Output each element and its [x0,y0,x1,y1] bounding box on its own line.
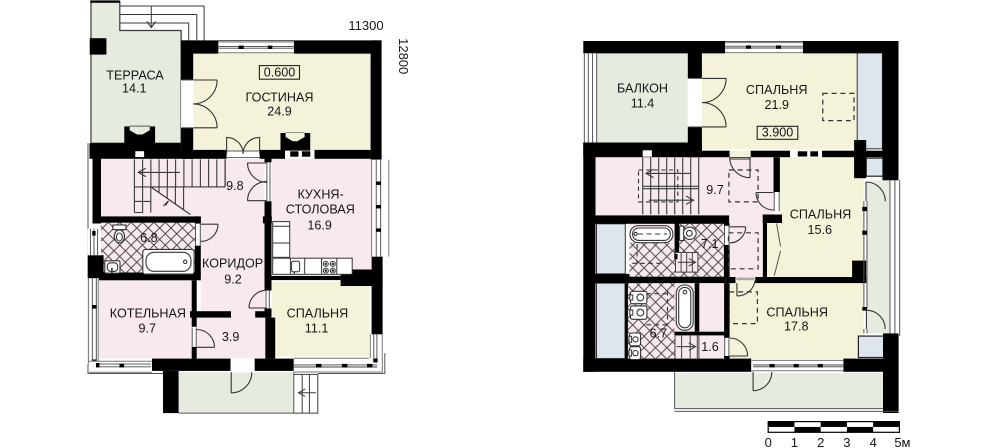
svg-text:11300: 11300 [348,18,383,33]
svg-text:17.8: 17.8 [784,320,809,334]
svg-text:КУХНЯ-: КУХНЯ- [297,187,343,201]
svg-text:5м: 5м [894,435,910,448]
svg-text:КОРИДОР: КОРИДОР [202,256,263,270]
svg-text:СПАЛЬНЯ: СПАЛЬНЯ [287,307,349,321]
svg-text:1.6: 1.6 [701,340,719,354]
svg-text:3.900: 3.900 [762,126,794,140]
svg-text:4: 4 [870,435,877,448]
svg-text:1: 1 [791,435,798,448]
svg-text:6.7: 6.7 [650,326,668,340]
svg-text:7.1: 7.1 [701,237,719,251]
svg-text:9.7: 9.7 [706,183,724,197]
svg-text:24.9: 24.9 [267,104,292,118]
svg-text:3.9: 3.9 [222,330,240,344]
svg-text:КОТЕЛЬНАЯ: КОТЕЛЬНАЯ [110,306,186,320]
svg-text:БАЛКОН: БАЛКОН [617,81,668,95]
svg-text:ГОСТИНАЯ: ГОСТИНАЯ [246,91,314,105]
svg-text:9.7: 9.7 [138,321,156,335]
svg-text:14.1: 14.1 [122,81,147,95]
svg-text:0: 0 [765,435,772,448]
svg-text:11.1: 11.1 [305,322,329,336]
svg-text:СПАЛЬНЯ: СПАЛЬНЯ [746,83,808,97]
svg-text:21.9: 21.9 [764,98,789,112]
svg-text:0.600: 0.600 [264,65,296,79]
svg-text:9.8: 9.8 [226,179,244,193]
svg-text:СПАЛЬНЯ: СПАЛЬНЯ [790,207,852,221]
svg-text:СПАЛЬНЯ: СПАЛЬНЯ [766,305,828,319]
svg-text:3: 3 [843,435,850,448]
svg-text:15.6: 15.6 [807,223,832,237]
svg-text:СТОЛОВАЯ: СТОЛОВАЯ [286,203,355,217]
svg-text:11.4: 11.4 [631,96,655,110]
svg-text:2: 2 [817,435,824,448]
svg-text:6.8: 6.8 [140,231,158,245]
svg-text:16.9: 16.9 [307,219,332,233]
svg-text:12800: 12800 [396,38,411,74]
svg-text:9.2: 9.2 [224,272,242,286]
